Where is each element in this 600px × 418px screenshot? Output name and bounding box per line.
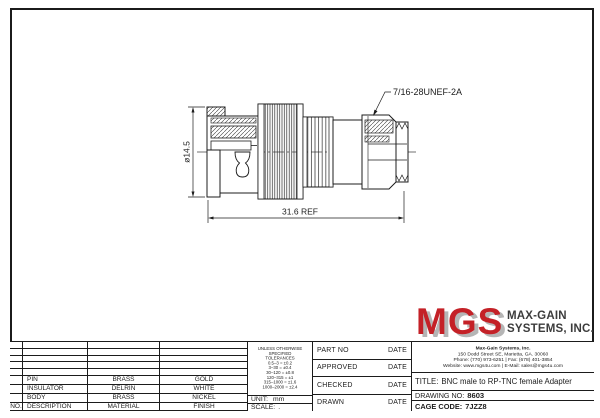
address-web: Website: www.mgs4u.com | E-Mail: sales@m…: [432, 363, 574, 369]
address-street: 150 Dodd Street SE, Marietta, GA. 30060: [432, 351, 574, 357]
smooth-body: [333, 120, 362, 184]
unit-value: mm: [273, 396, 284, 403]
drawing-sheet: ø14.5 31.6 REF 7/16-28UNEF-2A MGS MAX-GA…: [0, 0, 600, 418]
drawing-no-label: DRAWING NO:: [415, 391, 464, 400]
dim-diameter-text: ø14.5: [182, 141, 192, 163]
mgs-logo: MGS: [416, 303, 503, 340]
company-address-box: Max-Gain Systems, Inc. 150 Dodd Street S…: [412, 342, 594, 373]
tolerance-row: 315–1000 = ±1.6: [257, 380, 303, 385]
part-row-no: [10, 394, 23, 403]
signoff-date-label: DATE: [388, 382, 407, 389]
unit-label: UNIT:: [251, 396, 268, 403]
signoff-label: CHECKED: [317, 382, 353, 389]
signoff-date-label: DATE: [388, 364, 407, 371]
part-finish: GOLD: [160, 376, 248, 385]
thread-callout: 7/16-28UNEF-2A: [373, 87, 462, 116]
threaded-end: [396, 122, 408, 182]
signoff-label: APPROVED: [317, 364, 358, 371]
tolerance-title2: SPECIFIED TOLERANCES: [257, 352, 303, 361]
company-name-line2: SYSTEMS, INC.: [507, 323, 594, 336]
scale-value: .: [278, 404, 280, 411]
title-block: Max-Gain Systems, Inc. 150 Dodd Street S…: [412, 341, 594, 411]
signoff-row-drawn: DRAWN DATE: [313, 395, 411, 412]
cage-code-row: CAGE CODE: 7JZZ8: [412, 401, 594, 411]
signoff-label: PART NO: [317, 347, 349, 354]
signoff-row-approved: APPROVED DATE: [313, 360, 411, 378]
drawing-no-row: DRAWING NO: 8603: [412, 391, 594, 401]
tolerance-title: UNLESS OTHERWISE: [257, 347, 303, 352]
part-material: DELRIN: [88, 385, 160, 394]
ribbed-body: [303, 117, 333, 187]
parts-header-no: NO.: [10, 403, 23, 411]
scale-row: SCALE: .: [248, 404, 312, 411]
signoff-row-checked: CHECKED DATE: [313, 377, 411, 395]
signoff-row-partno: PART NO DATE: [313, 342, 411, 360]
signoff-date-label: DATE: [388, 347, 407, 354]
knurled-coupling-nut: [258, 104, 303, 199]
part-material: BRASS: [88, 394, 160, 403]
company-name: MAX-GAIN SYSTEMS, INC.: [507, 310, 594, 335]
parts-table: PIN BRASS GOLD INSULATOR DELRIN WHITE BO…: [10, 341, 248, 411]
part-row-no: [10, 376, 23, 385]
cage-code-value: 7JZZ8: [465, 402, 486, 411]
unit-row: UNIT: mm: [248, 396, 312, 404]
tolerance-table: UNLESS OTHERWISE SPECIFIED TOLERANCES 0.…: [257, 347, 303, 390]
length-dimension: 31.6 REF: [208, 191, 404, 223]
part-finish: NICKEL: [160, 394, 248, 403]
parts-header-material: MATERIAL: [88, 403, 160, 411]
bnc-male-section: [207, 107, 258, 197]
dim-length-text: 31.6 REF: [282, 207, 318, 217]
thread-label-text: 7/16-28UNEF-2A: [393, 87, 462, 97]
parts-header-finish: FINISH: [160, 403, 248, 411]
tolerance-row: 1000–2000 = ±2.4: [257, 385, 303, 390]
company-name-line1: MAX-GAIN: [507, 310, 594, 323]
part-finish: WHITE: [160, 385, 248, 394]
part-description: BODY: [23, 394, 88, 403]
title-value: BNC male to RP-TNC female Adapter: [441, 377, 571, 386]
scale-label: SCALE:: [251, 404, 275, 411]
part-row-no: [10, 385, 23, 394]
parts-header-description: DESCRIPTION: [23, 403, 88, 411]
connector-cross-section: ø14.5 31.6 REF 7/16-28UNEF-2A: [0, 0, 600, 340]
part-description: PIN: [23, 376, 88, 385]
rptnc-female-section: [362, 115, 408, 189]
signoff-block: PART NO DATE APPROVED DATE CHECKED DATE …: [313, 341, 412, 411]
title-label: TITLE:: [415, 377, 438, 386]
address-company: Max-Gain Systems, Inc.: [432, 345, 574, 351]
empty-cell: [10, 342, 23, 349]
address-phone: Phone: (770) 973-6251 | Fax: (678) 401-3…: [432, 357, 574, 363]
signoff-label: DRAWN: [317, 399, 344, 406]
signoff-date-label: DATE: [388, 399, 407, 406]
cage-code-label: CAGE CODE:: [415, 402, 462, 411]
title-row: TITLE: BNC male to RP-TNC female Adapter: [412, 373, 594, 391]
tolerance-block: UNLESS OTHERWISE SPECIFIED TOLERANCES 0.…: [248, 341, 313, 411]
drawing-no-value: 8603: [467, 391, 484, 400]
part-material: BRASS: [88, 376, 160, 385]
part-description: INSULATOR: [23, 385, 88, 394]
